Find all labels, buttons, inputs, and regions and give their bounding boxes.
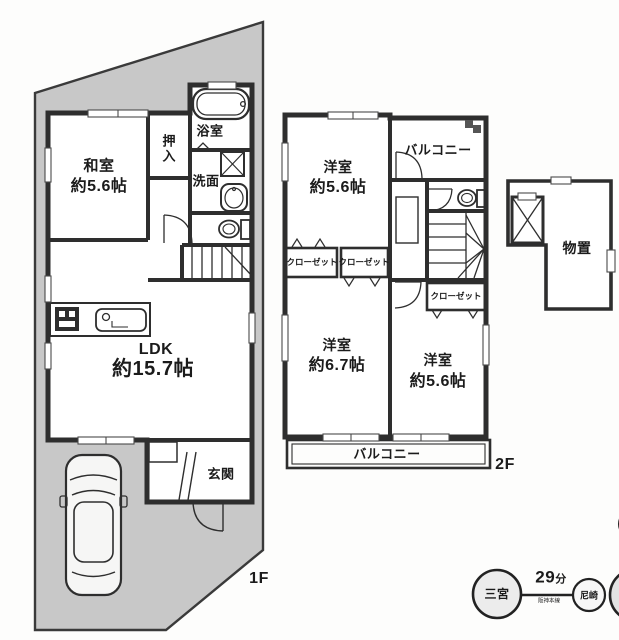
route-station-from: 三宮 <box>484 588 509 600</box>
room-size-bedroom3: 約5.6帖 <box>410 374 467 390</box>
room-size-bedroom1: 約5.6帖 <box>310 180 367 196</box>
room-label-bathroom: 浴室 <box>196 125 223 138</box>
car-icon <box>60 455 127 595</box>
route-station-next: 尼崎 <box>580 592 598 601</box>
route-duration-unit: 分 <box>555 574 567 586</box>
room-label-closet1: クローゼット <box>286 258 337 267</box>
room-label-genkan: 玄関 <box>207 468 234 481</box>
room-label-washroom: 洗面 <box>192 175 219 188</box>
room-label-closet3: クローゼット <box>430 292 481 301</box>
floor2-label: 2F <box>495 457 515 473</box>
station-circle-edge <box>610 569 619 621</box>
floor1-label: 1F <box>249 571 269 587</box>
room-label-oshiire: 押入 <box>162 134 175 164</box>
room-size-bedroom2: 約6.7帖 <box>309 358 366 374</box>
route-duration-value: 29 <box>535 568 555 587</box>
room-label-ldk: LDK <box>139 342 173 358</box>
kitchen-counter-icon <box>50 303 150 336</box>
room-label-washitsu: 和室 <box>83 159 114 174</box>
route-line-name: 阪神本線 <box>538 599 560 605</box>
route-duration: 29分 <box>535 569 566 586</box>
floorplan-graphics <box>0 0 619 640</box>
room-size-washitsu: 約5.6帖 <box>71 179 128 195</box>
hall-cabinet-icon <box>396 197 418 243</box>
room-size-ldk: 約15.7帖 <box>112 359 194 379</box>
room-label-balcony-top: バルコニー <box>404 144 471 157</box>
room-label-bedroom3: 洋室 <box>424 353 453 367</box>
room-label-bedroom2: 洋室 <box>323 338 352 352</box>
floorplan-page: { "floor1": { "label": "1F", "washitsu_n… <box>0 0 619 640</box>
room-label-bedroom1: 洋室 <box>324 160 353 174</box>
room-label-closet2: クローゼット <box>338 258 389 267</box>
room-label-storage: 物置 <box>563 241 592 255</box>
room-label-balcony-bottom: バルコニー <box>353 448 420 461</box>
